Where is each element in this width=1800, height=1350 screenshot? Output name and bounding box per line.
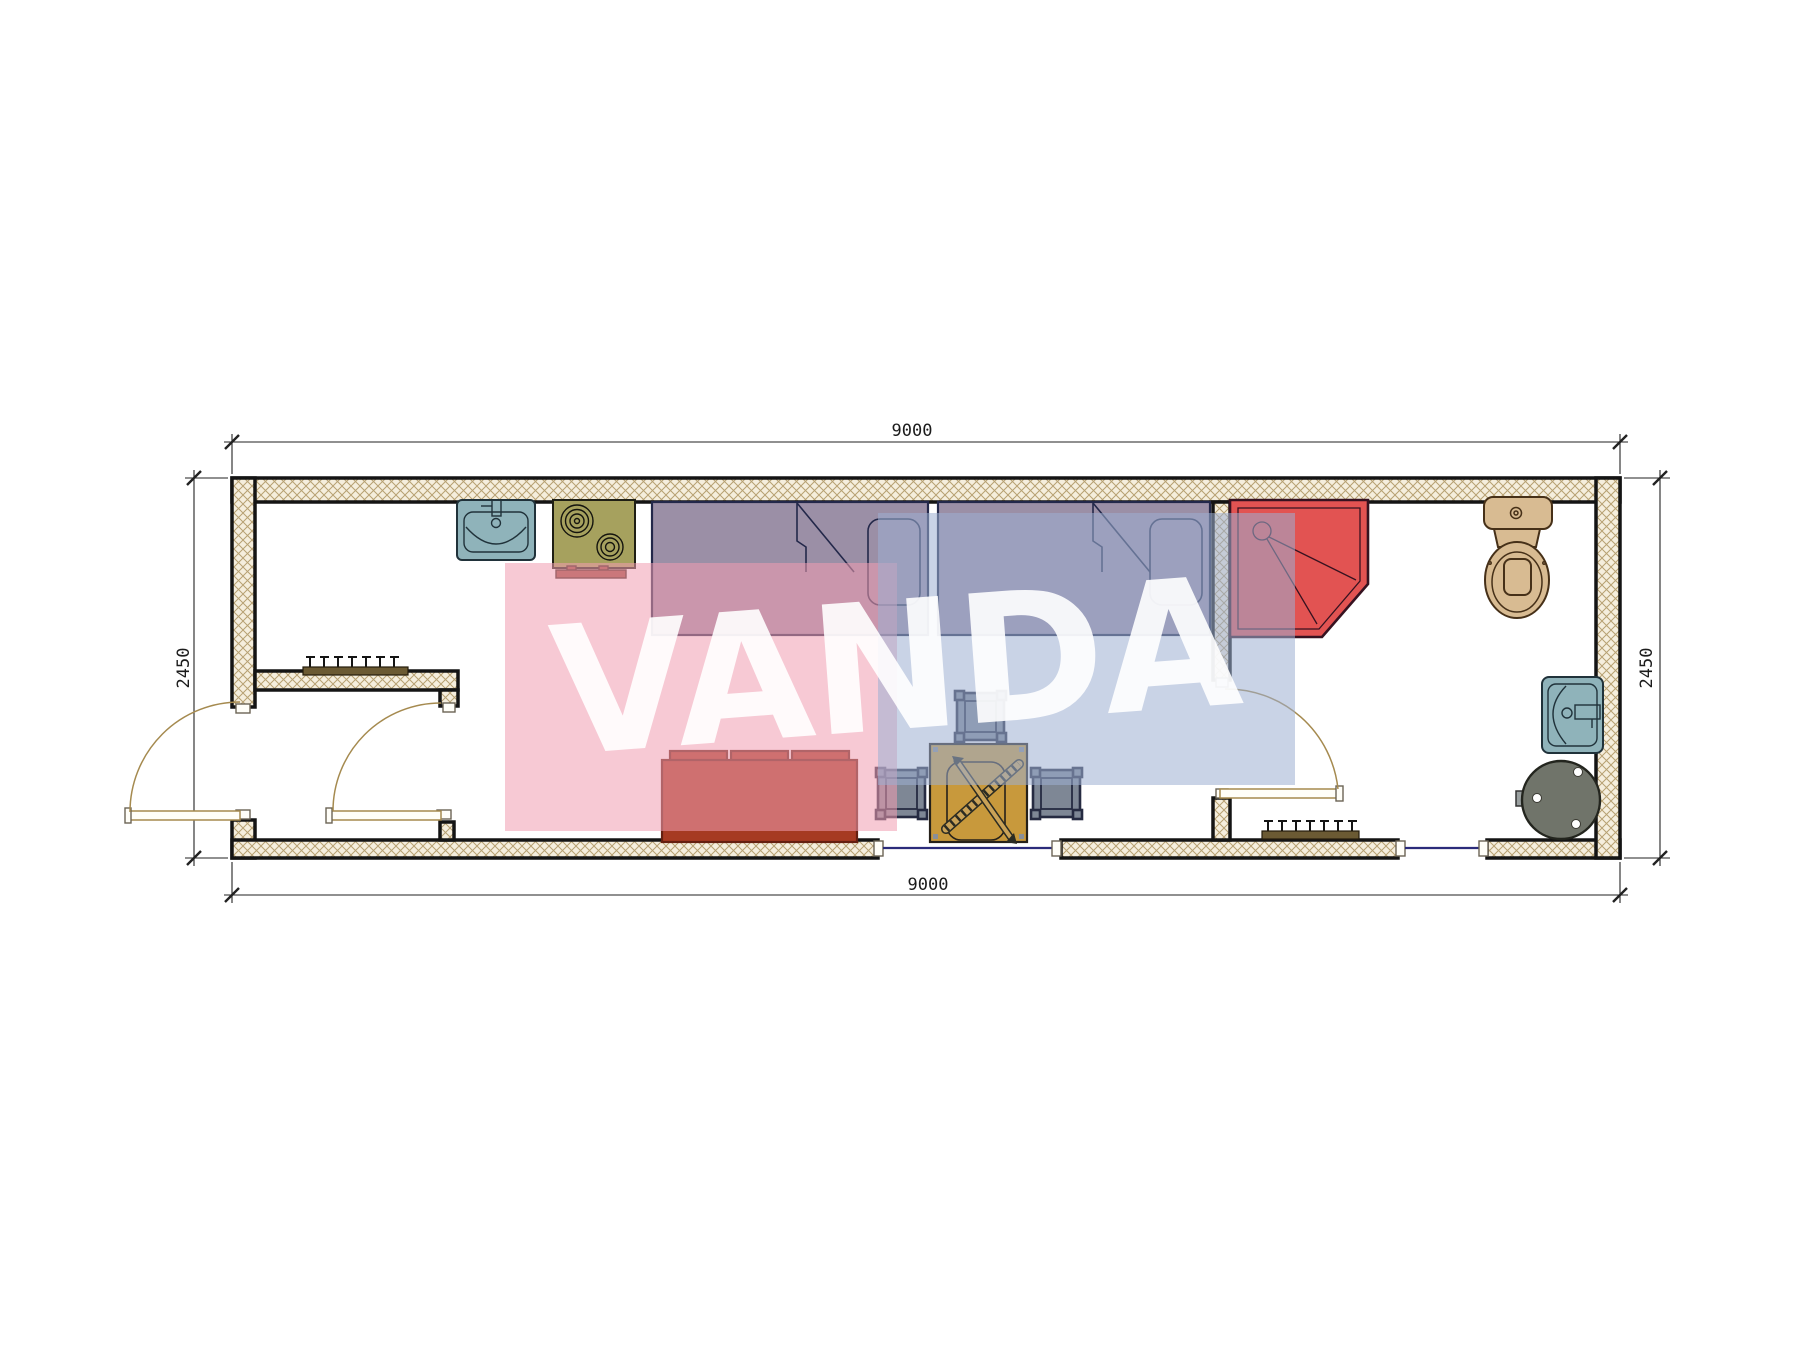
dimension-right: 2450 xyxy=(1624,470,1670,866)
vestibule-door xyxy=(326,703,455,823)
dimension-top: 9000 xyxy=(224,421,1628,474)
entry-door-swing-arc xyxy=(130,702,240,812)
coat-rack-bathroom xyxy=(1262,821,1359,839)
wall-bottom-middle xyxy=(1061,840,1398,858)
dimension-bottom: 9000 xyxy=(224,862,1628,903)
dimension-width-right: 2450 xyxy=(1637,648,1657,689)
window-living-room xyxy=(874,841,1061,856)
dimension-left: 2450 xyxy=(174,470,228,866)
dimension-width-left: 2450 xyxy=(174,648,194,689)
bathroom-door-stub-wall xyxy=(1213,798,1230,840)
kitchen-sink xyxy=(457,500,535,560)
entry-door xyxy=(125,702,250,823)
dimension-length-bottom: 9000 xyxy=(908,875,949,895)
window-bathroom xyxy=(1396,841,1488,856)
coat-rack-entry xyxy=(303,657,408,675)
bathroom-door-leaf xyxy=(1220,789,1338,798)
entry-door-leaf xyxy=(129,811,240,820)
bathroom-washbasin xyxy=(1542,677,1603,753)
wall-top xyxy=(232,478,1620,502)
vestibule-door-swing-arc xyxy=(333,703,441,811)
water-heater xyxy=(1516,761,1600,839)
wall-left-upper xyxy=(232,478,255,707)
toilet xyxy=(1484,497,1552,618)
floor-plan-canvas: 9000 9000 2450 2450 xyxy=(0,0,1800,1350)
vestibule-door-leaf xyxy=(330,811,441,820)
door-jamb-stub-vestibule xyxy=(440,822,454,840)
dimension-length-top: 9000 xyxy=(892,421,933,441)
